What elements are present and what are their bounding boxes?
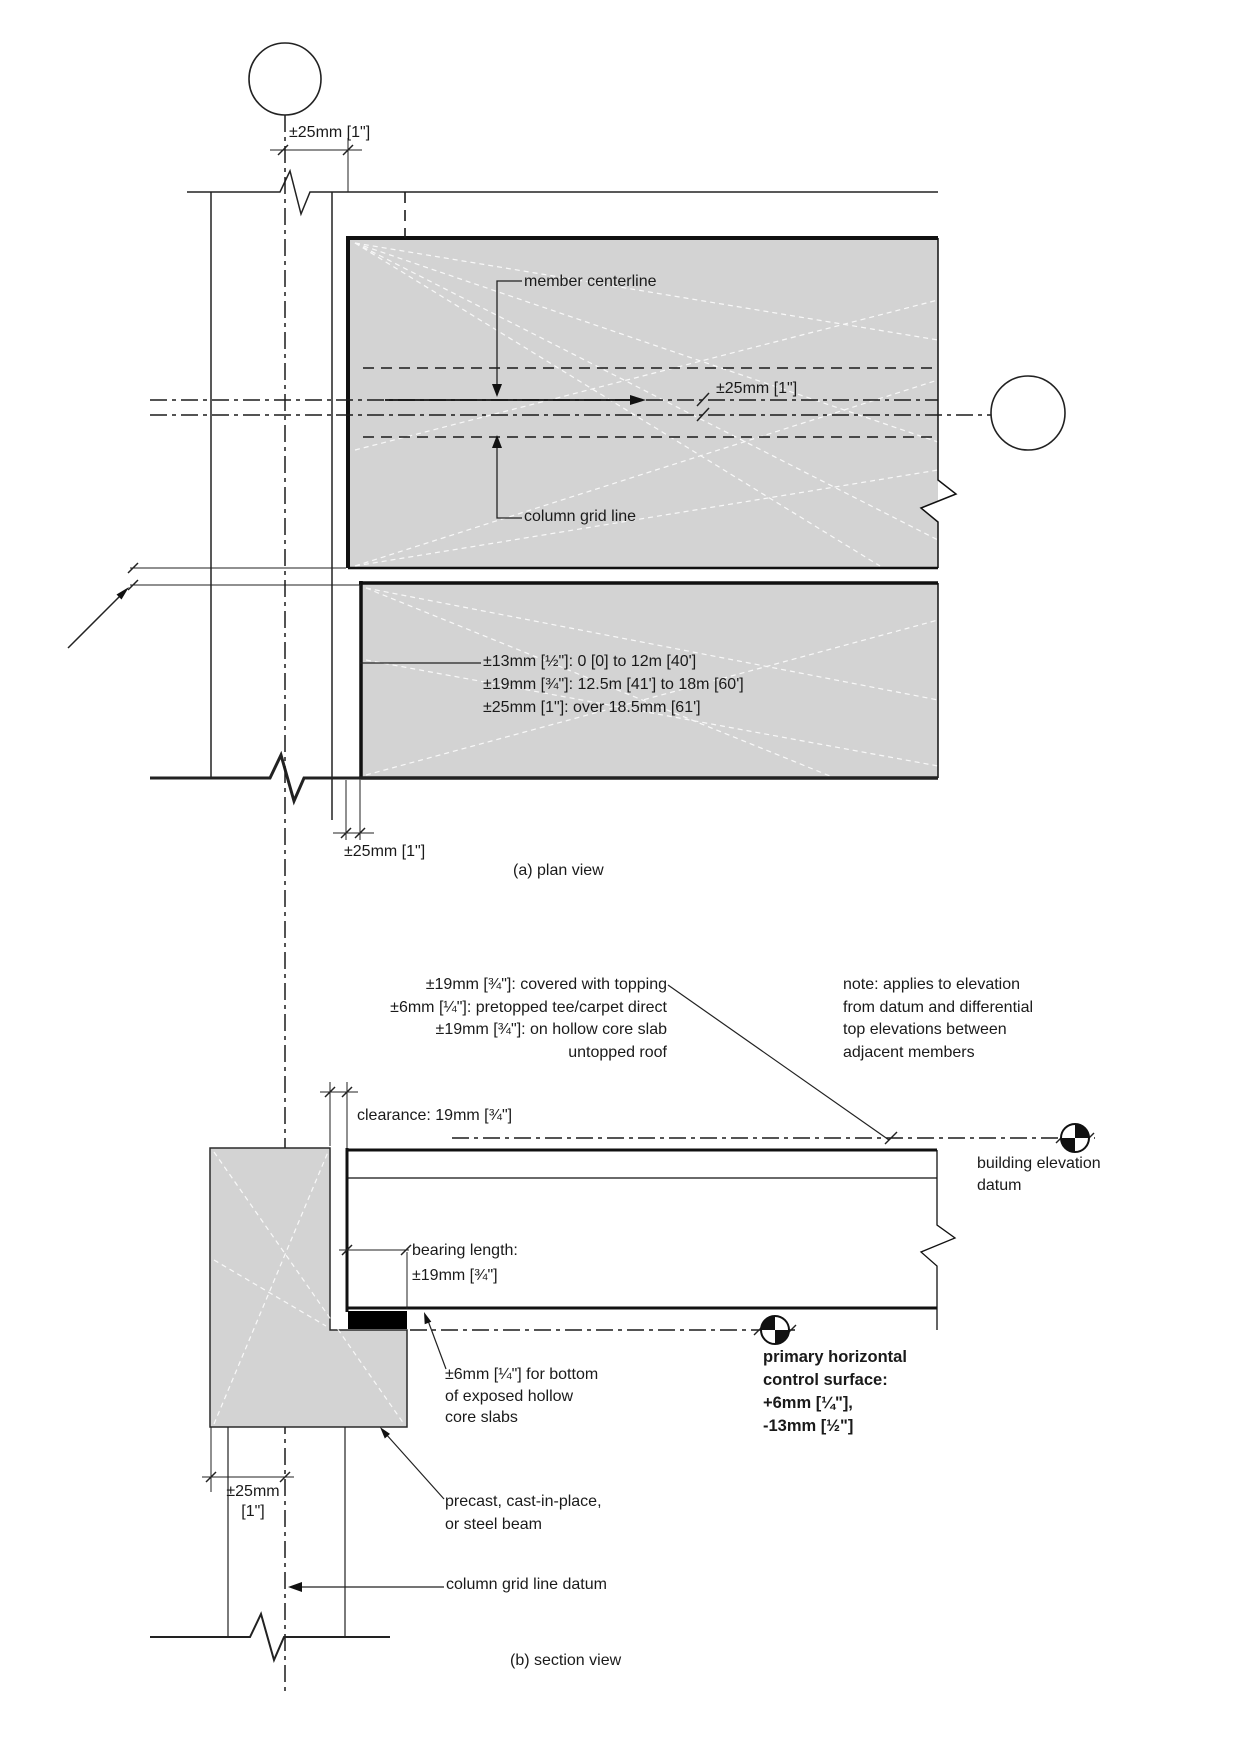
bearing-pad <box>348 1311 407 1329</box>
elevation-note-line: adjacent members <box>843 1042 1033 1065</box>
beam-type-label: precast, cast-in-place, or steel beam <box>445 1490 602 1536</box>
elevation-note-line: top elevations between <box>843 1019 1033 1042</box>
bearing-dimension <box>339 1245 411 1309</box>
section-left-dimension-label: ±25mm [1"] <box>210 1482 296 1522</box>
drawing-linework <box>0 0 1240 1755</box>
clearance-label: clearance: 19mm [¾"] <box>357 1105 512 1127</box>
beam-leader <box>380 1427 444 1499</box>
plan-top-dimension-label: ±25mm [1"] <box>289 122 370 144</box>
control-surface-line <box>410 1325 796 1335</box>
building-datum-line2: datum <box>977 1175 1101 1197</box>
support-beam <box>210 1148 407 1427</box>
slab-bottom-tolerance-line: core slabs <box>445 1407 598 1429</box>
plan-gap-dimension <box>68 563 138 648</box>
grid-datum-leader <box>288 1582 444 1592</box>
section-caption: (b) section view <box>510 1650 621 1672</box>
length-tolerance-line: ±13mm [½"]: 0 [0] to 12m [40'] <box>483 650 744 673</box>
column-grid-datum-label: column grid line datum <box>446 1574 607 1596</box>
topping-tolerance-line: ±19mm [¾"]: on hollow core slab <box>390 1019 667 1042</box>
slab-bottom-leader <box>424 1312 446 1369</box>
slab-bottom-tolerance-label: ±6mm [¼"] for bottom of exposed hollow c… <box>445 1364 598 1429</box>
topping-tolerance-line: untopped roof <box>390 1042 667 1065</box>
plan-bottom-dimension <box>333 828 374 838</box>
elevation-note-line: from datum and differential <box>843 997 1033 1020</box>
member-centerline-label: member centerline <box>524 271 657 293</box>
plan-caption: (a) plan view <box>513 860 604 882</box>
slab-bottom-tolerance-line: of exposed hollow <box>445 1386 598 1408</box>
plan-bottom-dimension-label: ±25mm [1"] <box>344 841 425 863</box>
building-datum-line1: building elevation <box>977 1153 1101 1175</box>
primary-control-line: -13mm [½"] <box>763 1415 907 1438</box>
length-tolerance-line: ±25mm [1"]: over 18.5mm [61'] <box>483 696 744 719</box>
elevation-note: note: applies to elevation from datum an… <box>843 974 1033 1064</box>
beam-type-line1: precast, cast-in-place, <box>445 1490 602 1513</box>
topping-tolerance-line: ±6mm [¼"]: pretopped tee/carpet direct <box>390 997 667 1020</box>
primary-control-line: control surface: <box>763 1369 907 1392</box>
length-tolerance-notes: ±13mm [½"]: 0 [0] to 12m [40'] ±19mm [¾"… <box>483 650 744 719</box>
section-lower-lines <box>150 1427 390 1660</box>
bearing-length-line1: bearing length: <box>412 1238 518 1263</box>
primary-control-line: +6mm [¼"], <box>763 1392 907 1415</box>
beam-type-line2: or steel beam <box>445 1513 602 1536</box>
building-datum-line <box>452 1133 1095 1143</box>
tolerance-drawing-page: ±25mm [1"] member centerline ±25mm [1"] … <box>0 0 1240 1755</box>
plan-center-dimension-label: ±25mm [1"] <box>716 378 797 400</box>
section-left-dimension-unit: [1"] <box>210 1502 296 1522</box>
building-elevation-datum-icon <box>1061 1124 1089 1152</box>
bearing-length-label: bearing length: ±19mm [¾"] <box>412 1238 518 1288</box>
elevation-note-line: note: applies to elevation <box>843 974 1033 997</box>
slab-bottom-tolerance-line: ±6mm [¼"] for bottom <box>445 1364 598 1386</box>
building-datum-label: building elevation datum <box>977 1153 1101 1197</box>
section-left-dimension-value: ±25mm <box>210 1482 296 1502</box>
primary-control-line: primary horizontal <box>763 1346 907 1369</box>
clearance-dimension <box>320 1082 358 1148</box>
primary-control-surface-label: primary horizontal control surface: +6mm… <box>763 1346 907 1438</box>
control-surface-datum-icon <box>761 1316 789 1344</box>
topping-tolerance-line: ±19mm [¾"]: covered with topping <box>390 974 667 997</box>
column-grid-line-label: column grid line <box>524 506 636 528</box>
topping-tolerance-notes: ±19mm [¾"]: covered with topping ±6mm [¼… <box>390 974 667 1064</box>
bearing-length-line2: ±19mm [¾"] <box>412 1263 518 1288</box>
length-tolerance-line: ±19mm [¾"]: 12.5m [41'] to 18m [60'] <box>483 673 744 696</box>
